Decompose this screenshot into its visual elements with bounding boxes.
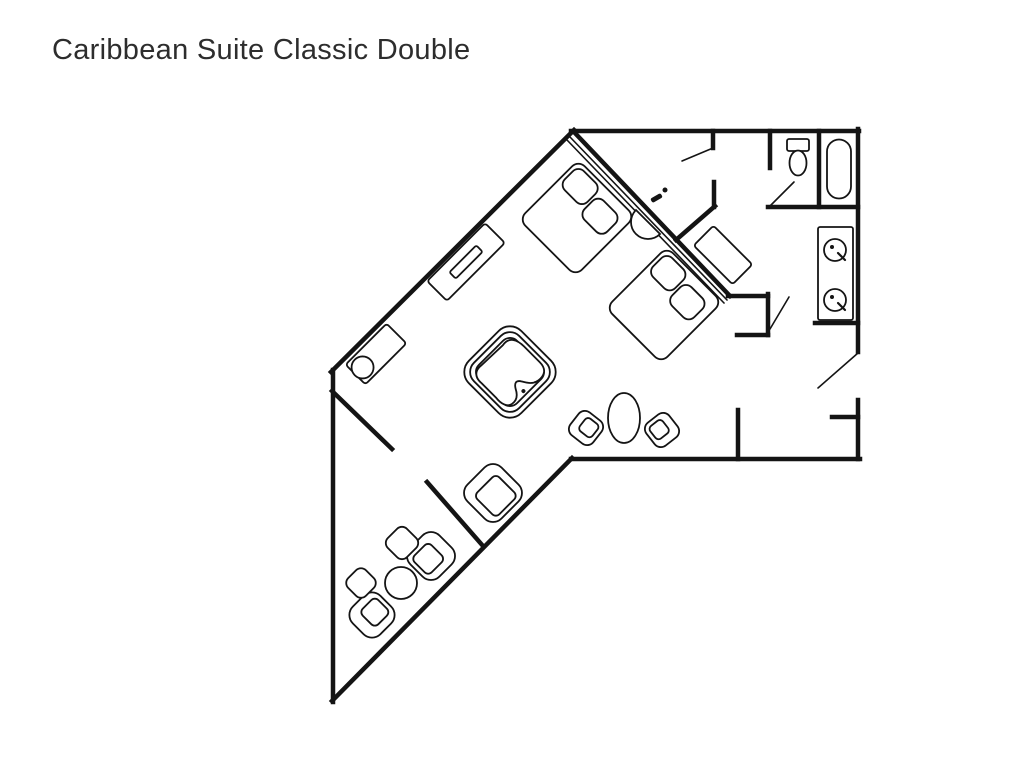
dining-chair-left	[566, 408, 607, 449]
fixture-tick	[651, 194, 661, 202]
round-lounge-table	[385, 567, 417, 599]
door-swing-vanity	[770, 297, 789, 329]
jacuzzi-tub	[458, 320, 563, 425]
bathtub	[827, 140, 851, 199]
wet-bar-counter	[345, 324, 407, 386]
wall-tail-partition-upper	[332, 391, 392, 449]
floor-plan-svg	[0, 0, 1024, 768]
oval-table	[608, 393, 640, 443]
door-swing-entry	[818, 353, 858, 388]
vanity-sink-2	[824, 289, 846, 311]
door-swing-wc	[770, 182, 794, 206]
bed-2	[606, 247, 722, 363]
fixture-dot	[663, 188, 668, 193]
dining-chair-right	[642, 410, 683, 451]
door-swing-closet	[682, 148, 713, 161]
wall-outer-nw-diagonal	[331, 130, 574, 372]
floor-plan-page: Caribbean Suite Classic Double	[0, 0, 1024, 768]
vanity-sink-1	[824, 239, 846, 261]
toilet	[787, 139, 809, 176]
